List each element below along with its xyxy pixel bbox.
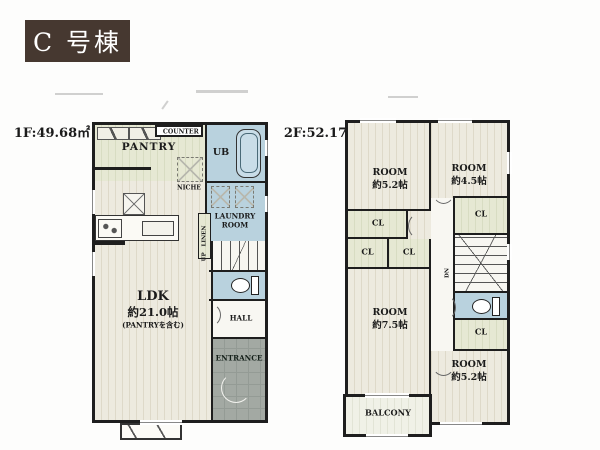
counter-label: COUNTER [163,128,195,136]
room-ne-label: ROOM [434,163,504,175]
window [366,434,408,439]
door-arc [197,303,221,327]
toilet-tank [251,276,259,295]
hall-label: HALL [227,315,256,324]
ldk-label: LDK [107,289,199,305]
pantry-label: PANTRY [111,141,187,154]
building-badge: C 号棟 [25,20,130,62]
closet-label: CL [362,219,395,229]
window [140,420,182,425]
window [90,252,95,276]
staircase-up [211,241,265,271]
interior-wall [95,167,151,170]
balcony-label: BALCONY [355,409,421,419]
window [507,152,512,174]
door-arc [434,295,456,320]
staircase-down [455,235,507,291]
niche-label: NICHE [177,184,202,192]
up-label: UP [201,250,208,265]
window [265,196,270,212]
window [365,393,409,398]
window [360,118,396,123]
interior-wall [95,241,125,245]
floor2-plan: ROOM 約5.2帖 ROOM 約4.5帖 CL CL CL CL DN [345,120,510,425]
kitchen-equipment [123,193,145,215]
closet-label: CL [393,248,426,258]
floor1-plan: PANTRY COUNTER NICHE UB LAUNDRY ROOM LIN… [92,122,268,423]
bathtub [236,129,261,178]
room-w-label: ROOM [352,307,428,319]
ub-label: UB [207,147,235,159]
entrance-label: ENTRANCE [216,355,261,364]
room-se-size: 約5.2帖 [434,372,504,384]
washer-space [235,186,254,208]
linen-label: LINEN [201,224,208,248]
door-arc [221,373,251,403]
washer-space [211,186,230,208]
cropped-text-artifact [161,100,168,109]
window [440,422,482,427]
window [438,118,472,123]
ldk-size-label: 約21.0帖 [107,305,199,319]
door-arc [408,213,432,239]
room-nw-label: ROOM [354,167,426,179]
dn-label: DN [444,266,451,281]
cropped-text-artifact [388,96,418,98]
appliance-space [177,157,203,182]
laundry-label: LAUNDRY ROOM [212,213,258,231]
ldk-note-label: (PANTRYを含む) [116,322,191,331]
window [507,244,512,260]
window [265,140,270,156]
closet-label: CL [465,328,498,338]
window [90,190,95,214]
interior-wall [387,239,389,269]
bathtub-inner [240,133,258,173]
room-w-size: 約7.5帖 [352,320,428,332]
room-nw-size: 約5.2帖 [354,180,426,192]
closet-label: CL [352,248,384,258]
shelf-symbol [97,127,129,140]
door-arc [432,176,455,204]
cropped-text-artifact [55,93,103,95]
toilet-bowl [231,278,250,293]
entrance-step [120,423,182,440]
interior-wall [453,349,507,351]
stove [98,219,122,238]
floorplan-image: C 号棟 1F:49.68㎡ 2F:52.17㎡ PANTRY COUNTER … [0,0,600,450]
toilet-tank [492,297,500,316]
closet-label: CL [465,210,498,220]
toilet-bowl [472,299,491,314]
cropped-text-artifact [196,90,248,93]
room-se-label: ROOM [434,359,504,371]
sink [142,221,174,236]
floor1-area-label: 1F:49.68㎡ [2,126,102,142]
